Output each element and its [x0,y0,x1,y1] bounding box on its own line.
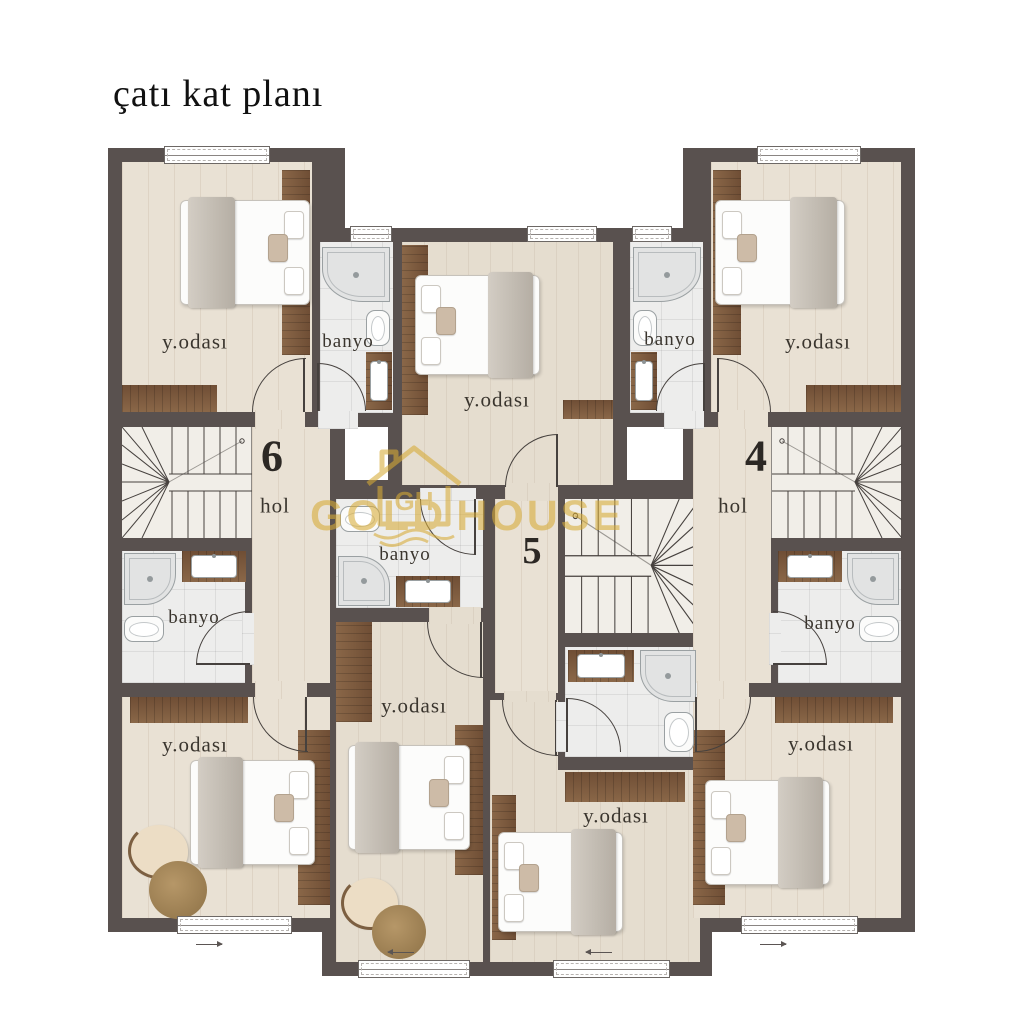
window [527,226,597,242]
round-rug [372,905,426,959]
toilet [340,506,380,532]
sink-basin [577,654,625,678]
door-opening [255,410,305,429]
door-opening [318,411,358,429]
room-label-bedroom-bottom-right: y.odası [788,732,854,757]
window [757,146,861,164]
door-leaf [474,499,476,555]
door-leaf [773,663,827,665]
wardrobe [563,400,613,419]
room-label-bathroom-mid-left: banyo [168,607,219,629]
pillow [268,234,288,262]
pillow [737,234,757,262]
bed-double [415,275,540,375]
room-stairs-left [122,427,252,538]
door-leaf [196,663,250,665]
room-label-bathroom-top-left: banyo [322,331,373,353]
sink-counter [631,352,657,410]
wardrobe [806,385,901,412]
pillow [726,814,746,842]
unit-number-4: 4 [745,431,767,482]
pillow [436,307,456,335]
pillow [519,864,539,892]
page-title: çatı kat planı [113,72,323,116]
sliding-window [741,916,858,934]
door-leaf [703,363,705,411]
room-label-bathroom-center: banyo [379,544,430,566]
wardrobe [565,772,685,802]
bed-double [348,745,470,850]
pillow [722,267,742,295]
staircase-right-icon [772,427,902,538]
sink-basin [635,361,653,401]
slide-direction-arrow [196,944,222,945]
room-label-hall-left: hol [260,494,290,519]
door-leaf [566,698,568,752]
pillow [284,267,304,295]
blanket [188,197,235,308]
pillow [421,337,441,365]
sink-counter [568,650,634,682]
sink-counter [182,551,246,582]
pillow [444,812,464,840]
blanket [571,829,616,935]
blanket [355,742,399,853]
sink-counter [396,576,460,607]
toilet [859,616,899,642]
door-leaf [556,434,558,487]
door-opening [664,411,704,429]
sink-basin [405,580,451,603]
round-rug [149,861,207,919]
room-label-bedroom-top-left: y.odası [162,330,228,355]
door-leaf [480,622,482,678]
blanket [790,197,837,308]
pillow [274,794,294,822]
room-label-bathroom-mid-right: banyo [804,613,855,635]
sliding-window [177,916,292,934]
door-opening [718,410,768,429]
wardrobe [336,622,372,722]
sink-basin [787,555,833,578]
unit-number-6: 6 [261,431,283,482]
pillow [289,827,309,855]
blanket [488,272,533,378]
slide-direction-arrow [586,952,612,953]
unit-number-5: 5 [523,529,542,573]
bed-double [498,832,623,932]
room-label-bedroom-bottom-center-left: y.odası [381,694,447,719]
floor-plan-canvas: çatı kat planı [0,0,1024,1024]
room-stairs-right [771,427,901,538]
bed-double [715,200,845,305]
sliding-window [553,960,670,978]
window [350,226,392,242]
blanket [778,777,823,888]
slide-direction-arrow [760,944,786,945]
sliding-window [358,960,470,978]
pillow [429,779,449,807]
toilet [124,616,164,642]
room-label-bedroom-bottom-center-right: y.odası [583,804,649,829]
bed-double [180,200,310,305]
door-leaf [317,363,319,411]
room-label-hall-right: hol [718,494,748,519]
staircase-left-icon [122,427,252,538]
slide-direction-arrow [388,952,414,953]
room-label-bedroom-top-center: y.odası [464,388,530,413]
door-leaf [305,697,307,752]
toilet [664,712,694,752]
wardrobe [130,697,248,723]
door-leaf [695,697,697,752]
room-label-bathroom-top-right: banyo [644,329,695,351]
sink-basin [370,361,388,401]
window [632,226,672,242]
wardrobe [122,385,217,412]
staircase-center-icon [565,499,700,633]
room-label-bedroom-bottom-left: y.odası [162,733,228,758]
door-leaf [303,358,305,412]
sink-counter [778,551,842,582]
bed-double [190,760,315,865]
bed-double [705,780,830,885]
window [164,146,270,164]
door-leaf [717,358,719,412]
pillow [504,894,524,922]
sink-counter [366,352,392,410]
wardrobe [775,697,893,723]
room-stairs-center [565,499,700,633]
blanket [198,757,243,868]
sink-basin [191,555,237,578]
pillow [711,847,731,875]
room-label-bedroom-top-right: y.odası [785,330,851,355]
